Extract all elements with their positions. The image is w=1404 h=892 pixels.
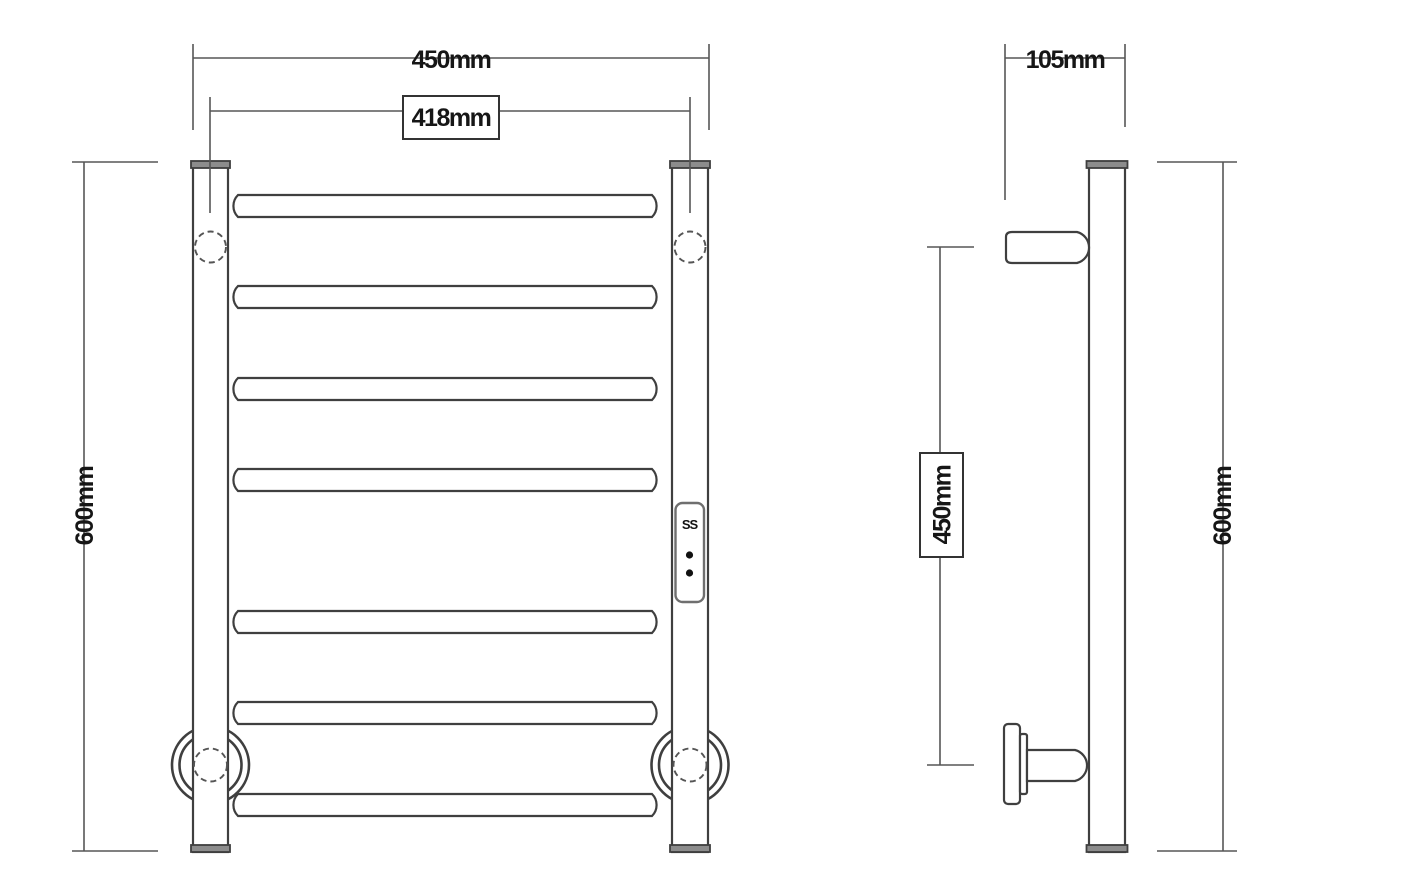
dimension-label-front-height: 600mm	[71, 466, 99, 545]
dimension-front-height: 600mm	[71, 162, 158, 851]
top-mounting-arm	[1006, 232, 1089, 263]
side-view: 105mm 450mm 600mm	[920, 44, 1237, 852]
wall-plate	[1004, 724, 1020, 804]
dimension-side-height: 600mm	[1157, 162, 1237, 851]
right-rail-bottom-cap	[670, 845, 710, 852]
dimension-label-rail-spacing: 418mm	[412, 104, 491, 132]
dimension-label-overall-width: 450mm	[412, 46, 491, 74]
control-panel: SS	[676, 503, 705, 602]
dimension-label-side-height: 600mm	[1209, 466, 1237, 545]
technical-drawing-canvas: SS 450mm 418mm 600mm	[0, 0, 1404, 892]
rung	[233, 378, 656, 400]
front-view: SS 450mm 418mm 600mm	[71, 44, 729, 852]
heat-indicator-dot	[686, 569, 693, 576]
side-rail-bottom-cap	[1087, 845, 1128, 852]
dimension-bracket-spacing: 450mm	[920, 247, 974, 765]
towel-rail-dimension-drawing: SS 450mm 418mm 600mm	[0, 0, 1404, 892]
left-rail	[193, 162, 228, 852]
rung	[233, 286, 656, 308]
dimension-label-depth: 105mm	[1026, 46, 1105, 74]
bottom-mounting-bracket	[1004, 724, 1087, 804]
rung	[233, 794, 656, 816]
dimension-label-bracket-spacing: 450mm	[929, 465, 957, 544]
left-rail-bottom-cap	[191, 845, 230, 852]
bottom-mounting-arm	[1027, 750, 1087, 781]
side-rail	[1089, 162, 1125, 852]
rung	[233, 469, 656, 491]
rung	[233, 611, 656, 633]
side-rail-top-cap	[1087, 161, 1128, 168]
control-panel-label: SS	[682, 517, 699, 532]
rung	[233, 195, 656, 217]
power-indicator-dot	[686, 551, 693, 558]
rungs	[233, 195, 656, 816]
rung	[233, 702, 656, 724]
